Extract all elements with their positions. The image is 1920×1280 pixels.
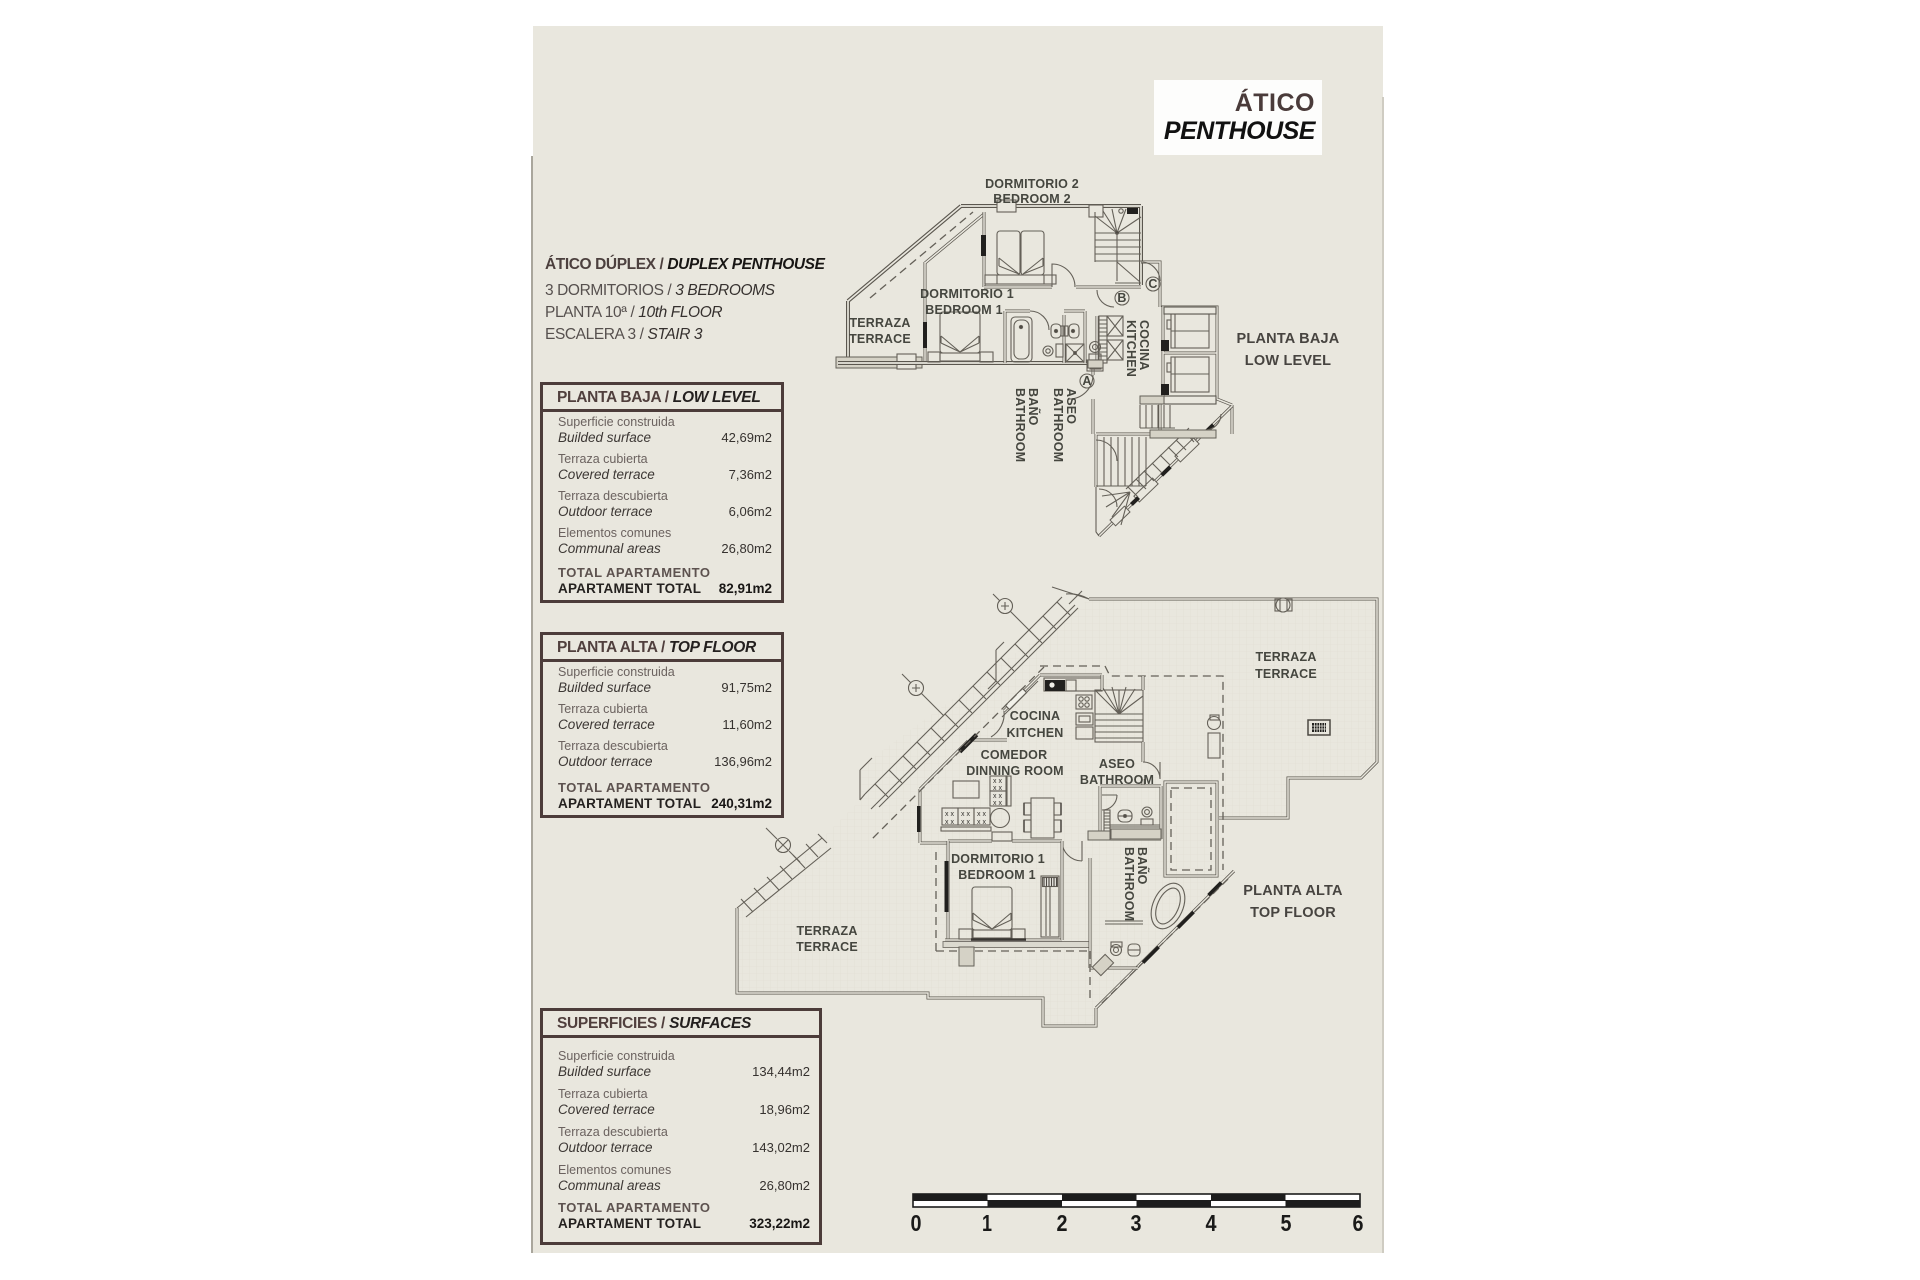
svg-text:LOW LEVEL: LOW LEVEL [1245,353,1331,369]
svg-text:BATHROOM: BATHROOM [1051,388,1065,462]
svg-text:5: 5 [1281,1210,1292,1236]
svg-text:BATHROOM: BATHROOM [1122,847,1136,921]
svg-text:x x: x x [945,811,954,818]
svg-text:BAÑO: BAÑO [1135,847,1150,885]
svg-text:COCINA: COCINA [1137,320,1151,371]
svg-text:A: A [1082,374,1091,388]
svg-text:x x: x x [993,778,1002,785]
svg-text:x x: x x [993,785,1002,792]
svg-text:TERRACE: TERRACE [796,940,858,954]
svg-text:PLANTA BAJA: PLANTA BAJA [1237,331,1340,347]
svg-text:DINNING ROOM: DINNING ROOM [966,764,1064,778]
svg-text:BATHROOM: BATHROOM [1013,388,1027,462]
svg-text:COCINA: COCINA [1010,709,1061,723]
svg-text:KITCHEN: KITCHEN [1124,320,1138,377]
svg-text:x x: x x [993,793,1002,800]
svg-text:6: 6 [1353,1210,1364,1236]
svg-text:COMEDOR: COMEDOR [981,748,1048,762]
svg-text:ASEO: ASEO [1099,757,1135,771]
svg-text:4: 4 [1206,1210,1217,1236]
svg-text:1: 1 [982,1210,992,1236]
svg-text:DORMITORIO 1: DORMITORIO 1 [951,852,1045,866]
svg-text:x x: x x [977,811,986,818]
svg-text:BEDROOM 1: BEDROOM 1 [925,303,1003,317]
svg-text:BEDROOM 1: BEDROOM 1 [958,868,1036,882]
svg-text:x x: x x [945,819,954,826]
svg-text:C: C [1148,277,1157,291]
svg-text:BAÑO: BAÑO [1026,388,1041,426]
svg-text:BATHROOM: BATHROOM [1080,773,1154,787]
svg-text:x x: x x [977,819,986,826]
svg-text:3: 3 [1131,1210,1142,1236]
svg-text:ASEO: ASEO [1064,388,1078,424]
svg-text:x x: x x [993,800,1002,807]
svg-text:DORMITORIO 2: DORMITORIO 2 [985,177,1079,191]
svg-text:2: 2 [1057,1210,1068,1236]
svg-text:TOP FLOOR: TOP FLOOR [1250,905,1336,921]
svg-text:TERRAZA: TERRAZA [796,924,857,938]
svg-text:PLANTA ALTA: PLANTA ALTA [1243,883,1343,899]
svg-text:TERRACE: TERRACE [1255,667,1317,681]
svg-text:0: 0 [911,1210,922,1236]
svg-text:B: B [1117,291,1126,305]
svg-text:TERRAZA: TERRAZA [849,316,910,330]
svg-text:x x: x x [961,819,970,826]
svg-text:KITCHEN: KITCHEN [1007,726,1064,740]
svg-text:TERRAZA: TERRAZA [1255,650,1316,664]
svg-text:DORMITORIO 1: DORMITORIO 1 [920,287,1014,301]
svg-text:x x: x x [961,811,970,818]
svg-text:BEDROOM 2: BEDROOM 2 [993,192,1071,206]
svg-text:TERRACE: TERRACE [849,332,911,346]
